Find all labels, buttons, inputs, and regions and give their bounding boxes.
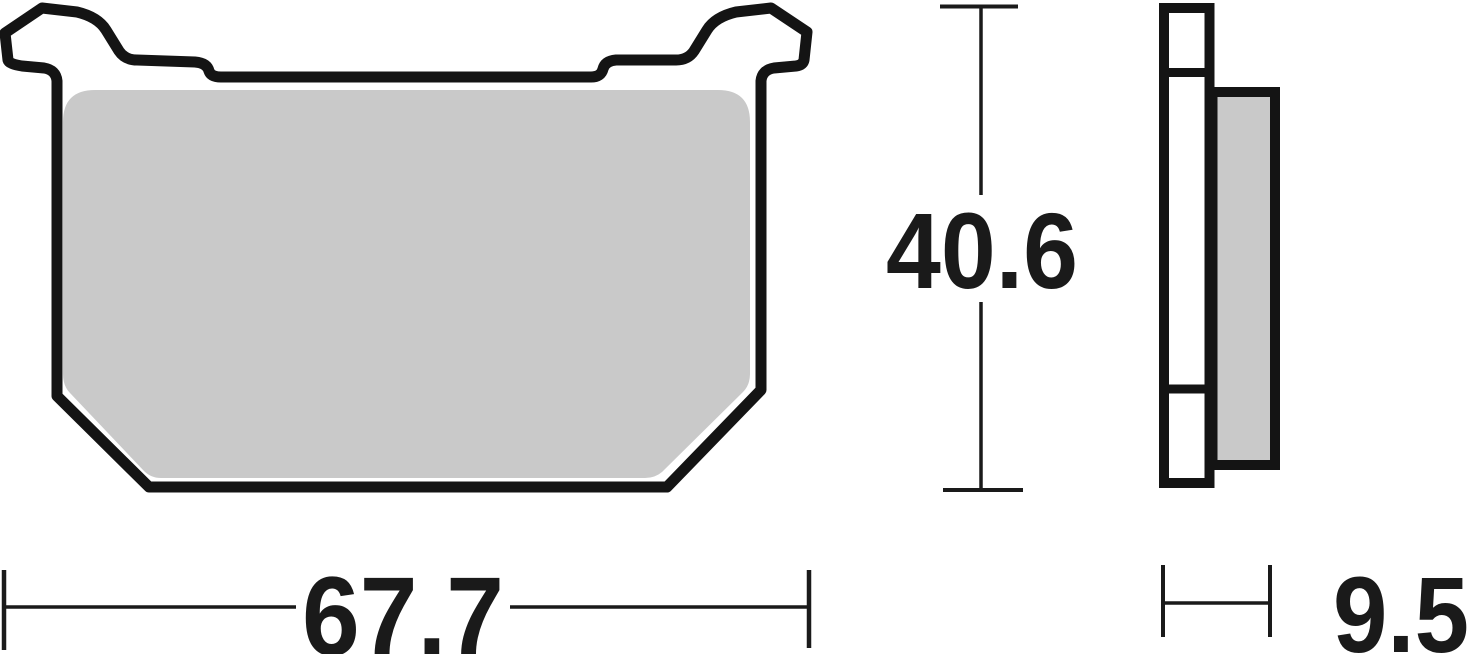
height-dimension-label: 40.6 <box>886 190 1078 311</box>
side-view-friction-material <box>1213 92 1276 465</box>
height-dimension: 40.6 <box>886 7 1078 491</box>
side-view-backplate <box>1164 8 1210 483</box>
width-dimension-label: 67.7 <box>302 554 504 654</box>
drawing-canvas: 40.6 67.7 9.5 <box>0 0 1470 654</box>
thickness-dimension-label: 9.5 <box>1333 554 1469 654</box>
brake-pad-drawing: 40.6 67.7 9.5 <box>0 0 1470 654</box>
width-dimension: 67.7 <box>4 554 809 654</box>
side-view <box>1160 8 1275 483</box>
front-view <box>5 8 807 487</box>
thickness-dimension: 9.5 <box>1163 554 1469 654</box>
front-view-friction-material <box>63 90 750 478</box>
